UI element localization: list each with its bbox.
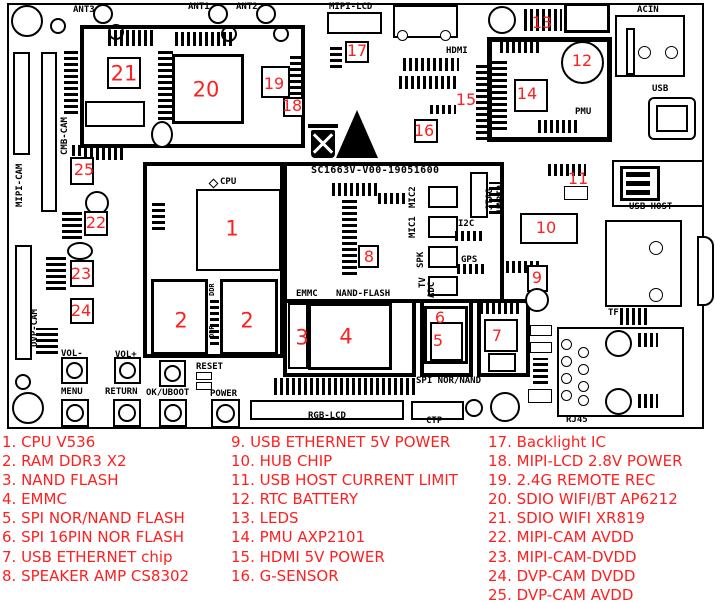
- component: [528, 389, 552, 403]
- silkscreen-label-adc: ADC: [428, 282, 438, 298]
- legend-item-3: 3. NAND FLASH: [2, 471, 189, 490]
- av-hole: [649, 241, 663, 255]
- component-marker-23: 23: [71, 266, 91, 282]
- legend-item-15: 15. HDMI 5V POWER: [231, 548, 458, 567]
- silkscreen-label-usb: USB: [652, 85, 668, 95]
- legend-item-1: 1. CPU V536: [2, 433, 189, 452]
- silkscreen-label-sc1663v-v00-19051600: SC1663V-V00-19051600: [311, 165, 439, 176]
- silkscreen-label-i2c: I2C: [458, 220, 474, 230]
- silkscreen-label-cmb-cam: CMB-CAM: [61, 117, 71, 155]
- mount-hole: [465, 399, 483, 417]
- rj45-pin: [561, 339, 572, 350]
- hdmi-screw: [440, 30, 451, 41]
- mount-hole: [50, 18, 66, 34]
- component-marker-6: 6: [435, 310, 445, 326]
- silkscreen-label-mipi-cam: MIPI-CAM: [16, 164, 26, 207]
- acin-pin: [626, 28, 635, 75]
- mount-hole: [11, 5, 43, 37]
- legend-item-22: 22. MIPI-CAM AVDD: [488, 528, 683, 547]
- silkscreen-label-ok-uboot: OK/UBOOT: [146, 389, 189, 399]
- component-round: [67, 242, 93, 260]
- component-marker-15: 15: [456, 92, 476, 108]
- acin-hole: [638, 46, 651, 59]
- chip: [488, 353, 516, 372]
- component-marker-5: 5: [433, 333, 443, 349]
- pad-strip: [430, 105, 456, 114]
- rj45-transformer: [605, 330, 632, 357]
- legend-column-3: 17. Backlight IC18. MIPI-LCD 2.8V POWER1…: [488, 433, 683, 602]
- silkscreen-label-uart0: UART0: [497, 185, 507, 212]
- rj45-transformer: [605, 388, 632, 415]
- silkscreen-label-ant3: ANT3: [73, 6, 95, 16]
- pad-strip: [342, 200, 357, 275]
- legend-item-7: 7. USB ETHERNET chip: [2, 548, 189, 567]
- component-marker-20: 20: [193, 80, 220, 101]
- component-round: [525, 288, 549, 312]
- mount-hole: [15, 374, 31, 390]
- mipi-lcd-connector: [327, 12, 382, 34]
- pad-strip: [378, 193, 408, 204]
- legend-column-1: 1. CPU V5362. RAM DDR3 X23. NAND FLASH4.…: [2, 433, 189, 586]
- component-marker-7: 7: [492, 328, 502, 344]
- silkscreen-label-nand-flash: NAND-FLASH: [336, 290, 390, 300]
- silkscreen-label-mic2: MIC2: [409, 186, 419, 208]
- component-marker-12: 12: [572, 53, 592, 69]
- component-marker-19: 19: [264, 76, 284, 92]
- acin-hole: [665, 46, 678, 59]
- component: [530, 325, 552, 336]
- silkscreen-label-ddr: DDR: [209, 283, 217, 296]
- pad-strip: [638, 394, 658, 408]
- vol-plus-button: [114, 357, 141, 384]
- rj45-pin: [561, 356, 572, 367]
- ok-uboot-button: [159, 399, 187, 427]
- legend-column-2: 9. USB ETHERNET 5V POWER10. HUB CHIP11. …: [231, 433, 458, 586]
- usb-pin: [626, 172, 650, 177]
- silkscreen-label-dvp-cam: DVP-CAM: [31, 309, 41, 347]
- pad-strip: [500, 42, 540, 53]
- silkscreen-label-ant1: ANT1: [188, 3, 210, 13]
- legend-item-13: 13. LEDS: [231, 509, 458, 528]
- pin-header-row: [274, 378, 416, 395]
- mount-hole: [490, 392, 520, 422]
- silkscreen-label-mic1: MIC1: [409, 216, 419, 238]
- return-button: [113, 399, 141, 427]
- silkscreen-label-vol-: VOL-: [61, 350, 83, 360]
- pad-strip: [62, 209, 82, 239]
- chip: [428, 246, 458, 268]
- legend-item-4: 4. EMMC: [2, 490, 189, 509]
- pad-strip: [492, 58, 507, 130]
- rj45-pin: [578, 395, 589, 406]
- usb-otg-inner: [656, 105, 688, 132]
- chip: [428, 216, 458, 238]
- silkscreen-label-spk: SPK: [417, 252, 427, 268]
- tact-button: [159, 360, 186, 387]
- weee-bin-icon: [306, 120, 340, 160]
- mipi-cam-connector: [41, 52, 57, 212]
- hdmi-screw: [397, 30, 408, 41]
- antenna-pad: [256, 4, 276, 24]
- pad-strip: [330, 44, 342, 68]
- component-marker-17: 17: [347, 43, 367, 59]
- pad-strip: [46, 256, 66, 290]
- component-marker-24: 24: [71, 303, 91, 319]
- silkscreen-label-hdmi: HDMI: [446, 47, 468, 57]
- silkscreen-label-cpu: CPU: [220, 178, 236, 188]
- rj45-pin: [578, 364, 589, 375]
- component-marker-11: 11: [568, 171, 588, 187]
- menu-button: [61, 399, 89, 427]
- component-marker-25: 25: [74, 162, 94, 178]
- silkscreen-label-rj45: RJ45: [566, 416, 588, 426]
- silkscreen-label-pmu: PMU: [575, 108, 591, 118]
- silkscreen-label-spi-nor-nand: SPI NOR/NAND: [416, 377, 481, 387]
- silkscreen-label-power: POWER: [210, 390, 237, 400]
- battery-holder: [564, 3, 610, 33]
- pad-strip: [455, 231, 483, 241]
- silkscreen-label-vol-: VOL+: [115, 351, 137, 361]
- component-oval: [151, 121, 173, 148]
- pad-strip: [538, 120, 580, 133]
- legend-item-18: 18. MIPI-LCD 2.8V POWER: [488, 452, 683, 471]
- legend-item-16: 16. G-SENSOR: [231, 567, 458, 586]
- legend-item-14: 14. PMU AXP2101: [231, 528, 458, 547]
- reset-pad: [196, 372, 212, 380]
- silkscreen-label-tf: TF: [608, 309, 619, 319]
- component-marker-8: 8: [364, 249, 374, 265]
- legend-item-6: 6. SPI 16PIN NOR FLASH: [2, 528, 189, 547]
- silkscreen-label-emmc: EMMC: [296, 290, 318, 300]
- component-marker-22: 22: [86, 215, 106, 231]
- component-marker-1: 1: [225, 219, 238, 240]
- legend-item-5: 5. SPI NOR/NAND FLASH: [2, 509, 189, 528]
- component-marker-14: 14: [517, 86, 537, 102]
- silkscreen-label-menu: MENU: [61, 388, 83, 398]
- silkscreen-label-ctp: CTP: [426, 417, 442, 427]
- power-button: [211, 399, 240, 428]
- rj45-pin: [578, 381, 589, 392]
- legend-item-19: 19. 2.4G REMOTE REC: [488, 471, 683, 490]
- legend-item-8: 8. SPEAKER AMP CS8302: [2, 567, 189, 586]
- chip: [428, 186, 458, 208]
- esd-triangle-icon: [336, 110, 378, 158]
- pad-strip: [533, 358, 548, 384]
- av-jack-bump: [697, 236, 714, 306]
- pad-strip: [332, 183, 378, 196]
- legend-item-17: 17. Backlight IC: [488, 433, 683, 452]
- pad-strip: [108, 30, 156, 46]
- pad-strip: [638, 333, 658, 347]
- component-marker-16: 16: [414, 123, 434, 139]
- rj45-pin: [561, 390, 572, 401]
- chip-current-limit: [564, 186, 588, 200]
- legend-item-12: 12. RTC BATTERY: [231, 490, 458, 509]
- silkscreen-label-reset: RESET: [196, 363, 223, 373]
- component-marker-18: 18: [282, 98, 302, 114]
- pad-strip: [290, 55, 302, 95]
- silkscreen-label-rgb-lcd: RGB-LCD: [308, 412, 346, 422]
- component-marker-2: 2: [174, 311, 187, 332]
- pad-strip: [399, 76, 459, 89]
- legend-item-11: 11. USB HOST CURRENT LIMIT: [231, 471, 458, 490]
- pad-strip: [158, 48, 173, 120]
- silkscreen-label-return: RETURN: [105, 388, 138, 398]
- legend-item-23: 23. MIPI-CAM-DVDD: [488, 548, 683, 567]
- vol-minus-button: [61, 357, 88, 384]
- component-marker-4: 4: [339, 327, 352, 348]
- component-marker-2: 2: [240, 311, 253, 332]
- legend-item-25: 25. DVP-CAM AVDD: [488, 586, 683, 602]
- antenna-pad: [93, 4, 113, 24]
- legend-item-2: 2. RAM DDR3 X2: [2, 452, 189, 471]
- chip: [85, 101, 145, 127]
- silkscreen-label-acin: ACIN: [637, 6, 659, 16]
- silkscreen-label-jtag: JTAG: [486, 188, 496, 210]
- silkscreen-label-mipi-lcd: MIPI-LCD: [329, 3, 372, 13]
- silkscreen-label-gps: GPS: [461, 256, 477, 266]
- antenna-pad: [208, 4, 228, 24]
- av-hole: [649, 288, 663, 302]
- pad-strip: [476, 64, 490, 140]
- usb-pin: [626, 190, 650, 195]
- pad-strip: [403, 58, 459, 71]
- av-jack: [605, 220, 682, 307]
- component-marker-10: 10: [536, 220, 556, 236]
- cmb-cam-pads: [64, 48, 78, 114]
- pcb-diagram: ANT3ANT1ANT2MIPI-LCDHDMIACINUSBPMUUSB-HO…: [0, 0, 715, 602]
- mount-hole: [488, 6, 516, 34]
- pad-strip: [72, 145, 102, 156]
- legend-item-10: 10. HUB CHIP: [231, 452, 458, 471]
- component: [530, 342, 552, 353]
- tf-slot-pins: [620, 308, 650, 325]
- component-marker-9: 9: [532, 270, 542, 286]
- rj45-pin: [578, 347, 589, 358]
- usb-pin: [626, 181, 650, 186]
- silkscreen-label-usb-host: USB-HOST: [629, 203, 672, 213]
- rj45-pin: [561, 373, 572, 384]
- edge-connector: [13, 52, 30, 155]
- legend-item-9: 9. USB ETHERNET 5V POWER: [231, 433, 458, 452]
- legend-item-24: 24. DVP-CAM DVDD: [488, 567, 683, 586]
- legend-item-20: 20. SDIO WIFI/BT AP6212: [488, 490, 683, 509]
- silkscreen-label-ddr: DDR: [209, 325, 217, 338]
- component-marker-13: 13: [532, 15, 552, 31]
- pad-strip: [480, 303, 522, 314]
- pad-strip: [175, 32, 233, 46]
- mount-hole: [12, 392, 44, 424]
- silkscreen-label-ant2: ANT2: [236, 3, 258, 13]
- legend-item-21: 21. SDIO WIFI XR819: [488, 509, 683, 528]
- component-marker-21: 21: [111, 64, 138, 85]
- pad-strip: [152, 200, 165, 230]
- component-marker-3: 3: [295, 328, 308, 349]
